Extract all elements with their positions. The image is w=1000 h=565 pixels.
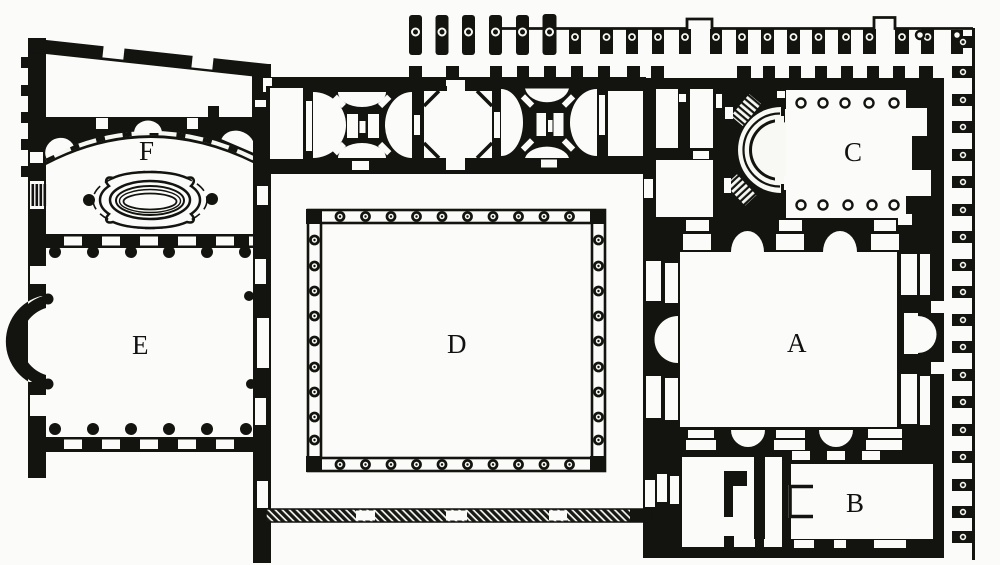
svg-text:C: C [844, 137, 862, 167]
svg-text:F: F [139, 136, 154, 166]
svg-text:B: B [846, 488, 864, 518]
svg-text:A: A [787, 328, 807, 358]
svg-text:D: D [447, 329, 467, 359]
svg-text:E: E [132, 330, 149, 360]
